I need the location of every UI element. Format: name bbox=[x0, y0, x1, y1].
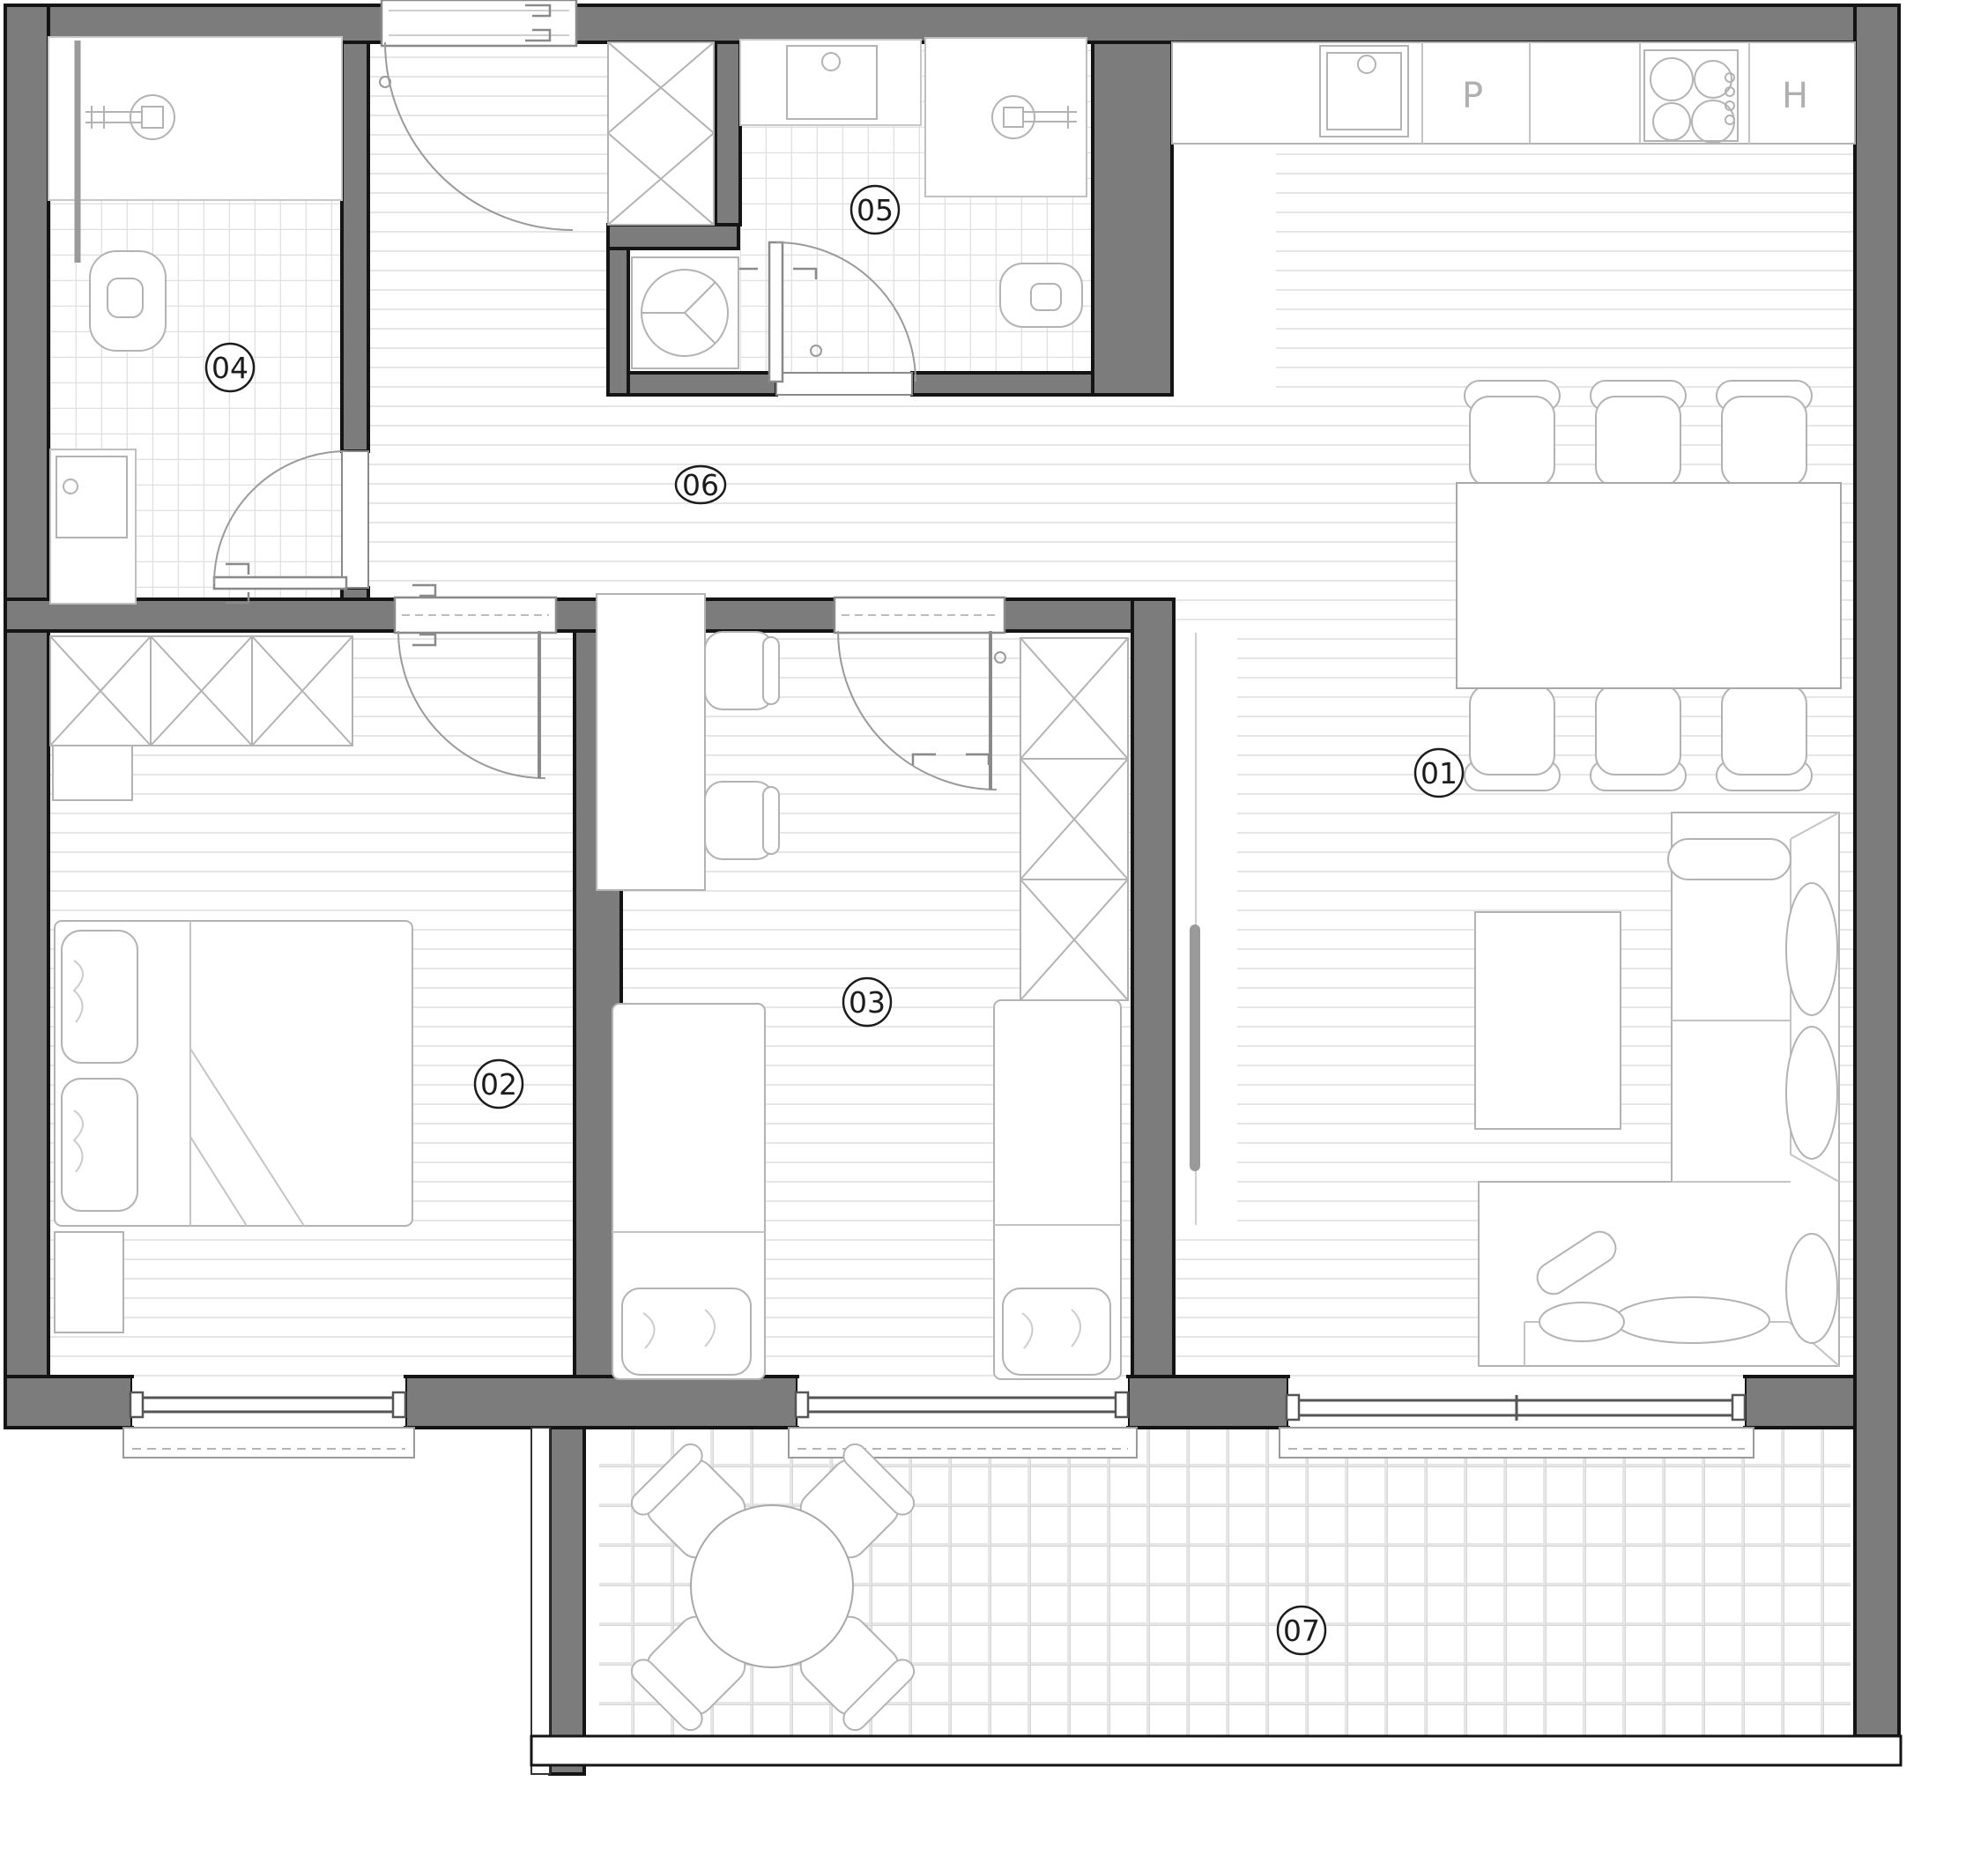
bedroom-02-wardrobe bbox=[50, 636, 352, 746]
wall-terrace-left bbox=[550, 1428, 584, 1774]
wall-bath05-shaft bbox=[1093, 42, 1172, 395]
desk-chair bbox=[705, 632, 779, 709]
dining-table bbox=[1457, 483, 1841, 688]
dining-chair bbox=[1591, 685, 1686, 790]
svg-text:06: 06 bbox=[682, 468, 719, 502]
toilet-05-icon bbox=[1000, 263, 1082, 327]
room-label-04: 04 bbox=[206, 344, 254, 391]
window-room03-sill bbox=[789, 1428, 1137, 1458]
dining-chair bbox=[1717, 685, 1812, 790]
floor-plan-canvas: P H bbox=[0, 0, 1988, 1863]
kitchen: P H bbox=[1172, 42, 1855, 144]
svg-text:07: 07 bbox=[1283, 1614, 1320, 1648]
sink-05-icon bbox=[787, 46, 877, 119]
double-bed bbox=[55, 921, 412, 1226]
svg-text:03: 03 bbox=[849, 985, 886, 1020]
room-03-wardrobe bbox=[1020, 638, 1128, 1000]
pillow bbox=[1003, 1288, 1110, 1375]
shower-tray-icon bbox=[632, 257, 738, 368]
kitchen-walkway bbox=[1174, 144, 1276, 401]
sofa-back-cushion bbox=[1786, 883, 1837, 1015]
kitchen-counter bbox=[1172, 42, 1855, 144]
single-bed bbox=[994, 1000, 1121, 1379]
parapet-bottom bbox=[531, 1736, 1901, 1765]
nightstand bbox=[53, 746, 132, 800]
wall-niche-left bbox=[608, 249, 628, 395]
sliding-door-leaf bbox=[1190, 924, 1200, 1171]
dining-chair bbox=[1591, 381, 1686, 486]
pillow bbox=[62, 931, 137, 1063]
sofa-seat-cushion bbox=[1614, 1297, 1769, 1343]
terrace-round-table bbox=[691, 1505, 853, 1667]
hall-closet bbox=[608, 42, 714, 225]
shower-area-05 bbox=[925, 38, 1087, 197]
svg-text:05: 05 bbox=[857, 193, 894, 227]
wall-niche-top bbox=[608, 225, 738, 249]
tv-board bbox=[1475, 912, 1621, 1129]
room-label-03: 03 bbox=[843, 978, 891, 1026]
wall-bath05-bottom-b bbox=[912, 373, 1093, 395]
room-label-05: 05 bbox=[851, 186, 899, 234]
windows bbox=[123, 1378, 1754, 1458]
window-bedroom-opening bbox=[132, 1378, 405, 1426]
room-label-01: 01 bbox=[1415, 749, 1463, 797]
floor-hallway bbox=[368, 401, 1174, 599]
wall-hall-bottom-c bbox=[1001, 599, 1132, 631]
wall-bath05-bottom-a bbox=[608, 373, 776, 395]
wall-bottom-d bbox=[1745, 1377, 1855, 1428]
floor-plan-drawing: P H bbox=[0, 0, 1988, 1863]
sofa-back-cushion bbox=[1786, 1027, 1837, 1159]
svg-text:02: 02 bbox=[480, 1067, 517, 1102]
svg-text:04: 04 bbox=[211, 351, 248, 385]
sofa-armrest-cushion bbox=[1668, 839, 1791, 880]
kitchen-sink-icon bbox=[1320, 46, 1408, 137]
desk bbox=[597, 594, 705, 890]
counter-letter-h: H bbox=[1782, 76, 1808, 116]
balcony-slider-sill bbox=[1280, 1428, 1754, 1458]
wall-bath05-left bbox=[716, 42, 740, 225]
dining-chair bbox=[1465, 685, 1560, 790]
nightstand bbox=[55, 1232, 123, 1332]
wall-top-right bbox=[573, 5, 1899, 42]
wall-bottom-c bbox=[1128, 1377, 1288, 1428]
wall-bottom-a bbox=[5, 1377, 132, 1428]
hob-icon bbox=[1644, 50, 1738, 143]
sofa-seat-cushion bbox=[1539, 1303, 1624, 1341]
single-bed bbox=[612, 1004, 765, 1379]
room-label-06: 06 bbox=[676, 466, 725, 503]
wall-bath04-right bbox=[342, 42, 368, 451]
room-label-07: 07 bbox=[1278, 1607, 1325, 1654]
window-bedroom-sill bbox=[123, 1428, 414, 1458]
svg-text:01: 01 bbox=[1421, 756, 1458, 790]
parapet-left bbox=[531, 1428, 550, 1774]
pillow bbox=[62, 1079, 137, 1211]
room-label-02: 02 bbox=[475, 1060, 523, 1108]
toilet-04-icon bbox=[90, 251, 166, 351]
wall-left bbox=[5, 5, 48, 1428]
pillow bbox=[622, 1288, 751, 1375]
dining-chair bbox=[1717, 381, 1812, 486]
living-sliding-door bbox=[1176, 633, 1237, 1225]
sofa-back-cushion bbox=[1786, 1234, 1837, 1343]
wall-room03-living bbox=[1132, 599, 1174, 1377]
dining-chair bbox=[1465, 381, 1560, 486]
vanity-sink-04 bbox=[50, 449, 136, 604]
desk-chair bbox=[705, 782, 779, 859]
window-room03-opening bbox=[797, 1378, 1128, 1426]
dining-set bbox=[1457, 381, 1841, 790]
wall-right bbox=[1855, 5, 1899, 1736]
wall-bottom-b bbox=[405, 1377, 797, 1428]
counter-letter-p: P bbox=[1462, 76, 1483, 116]
